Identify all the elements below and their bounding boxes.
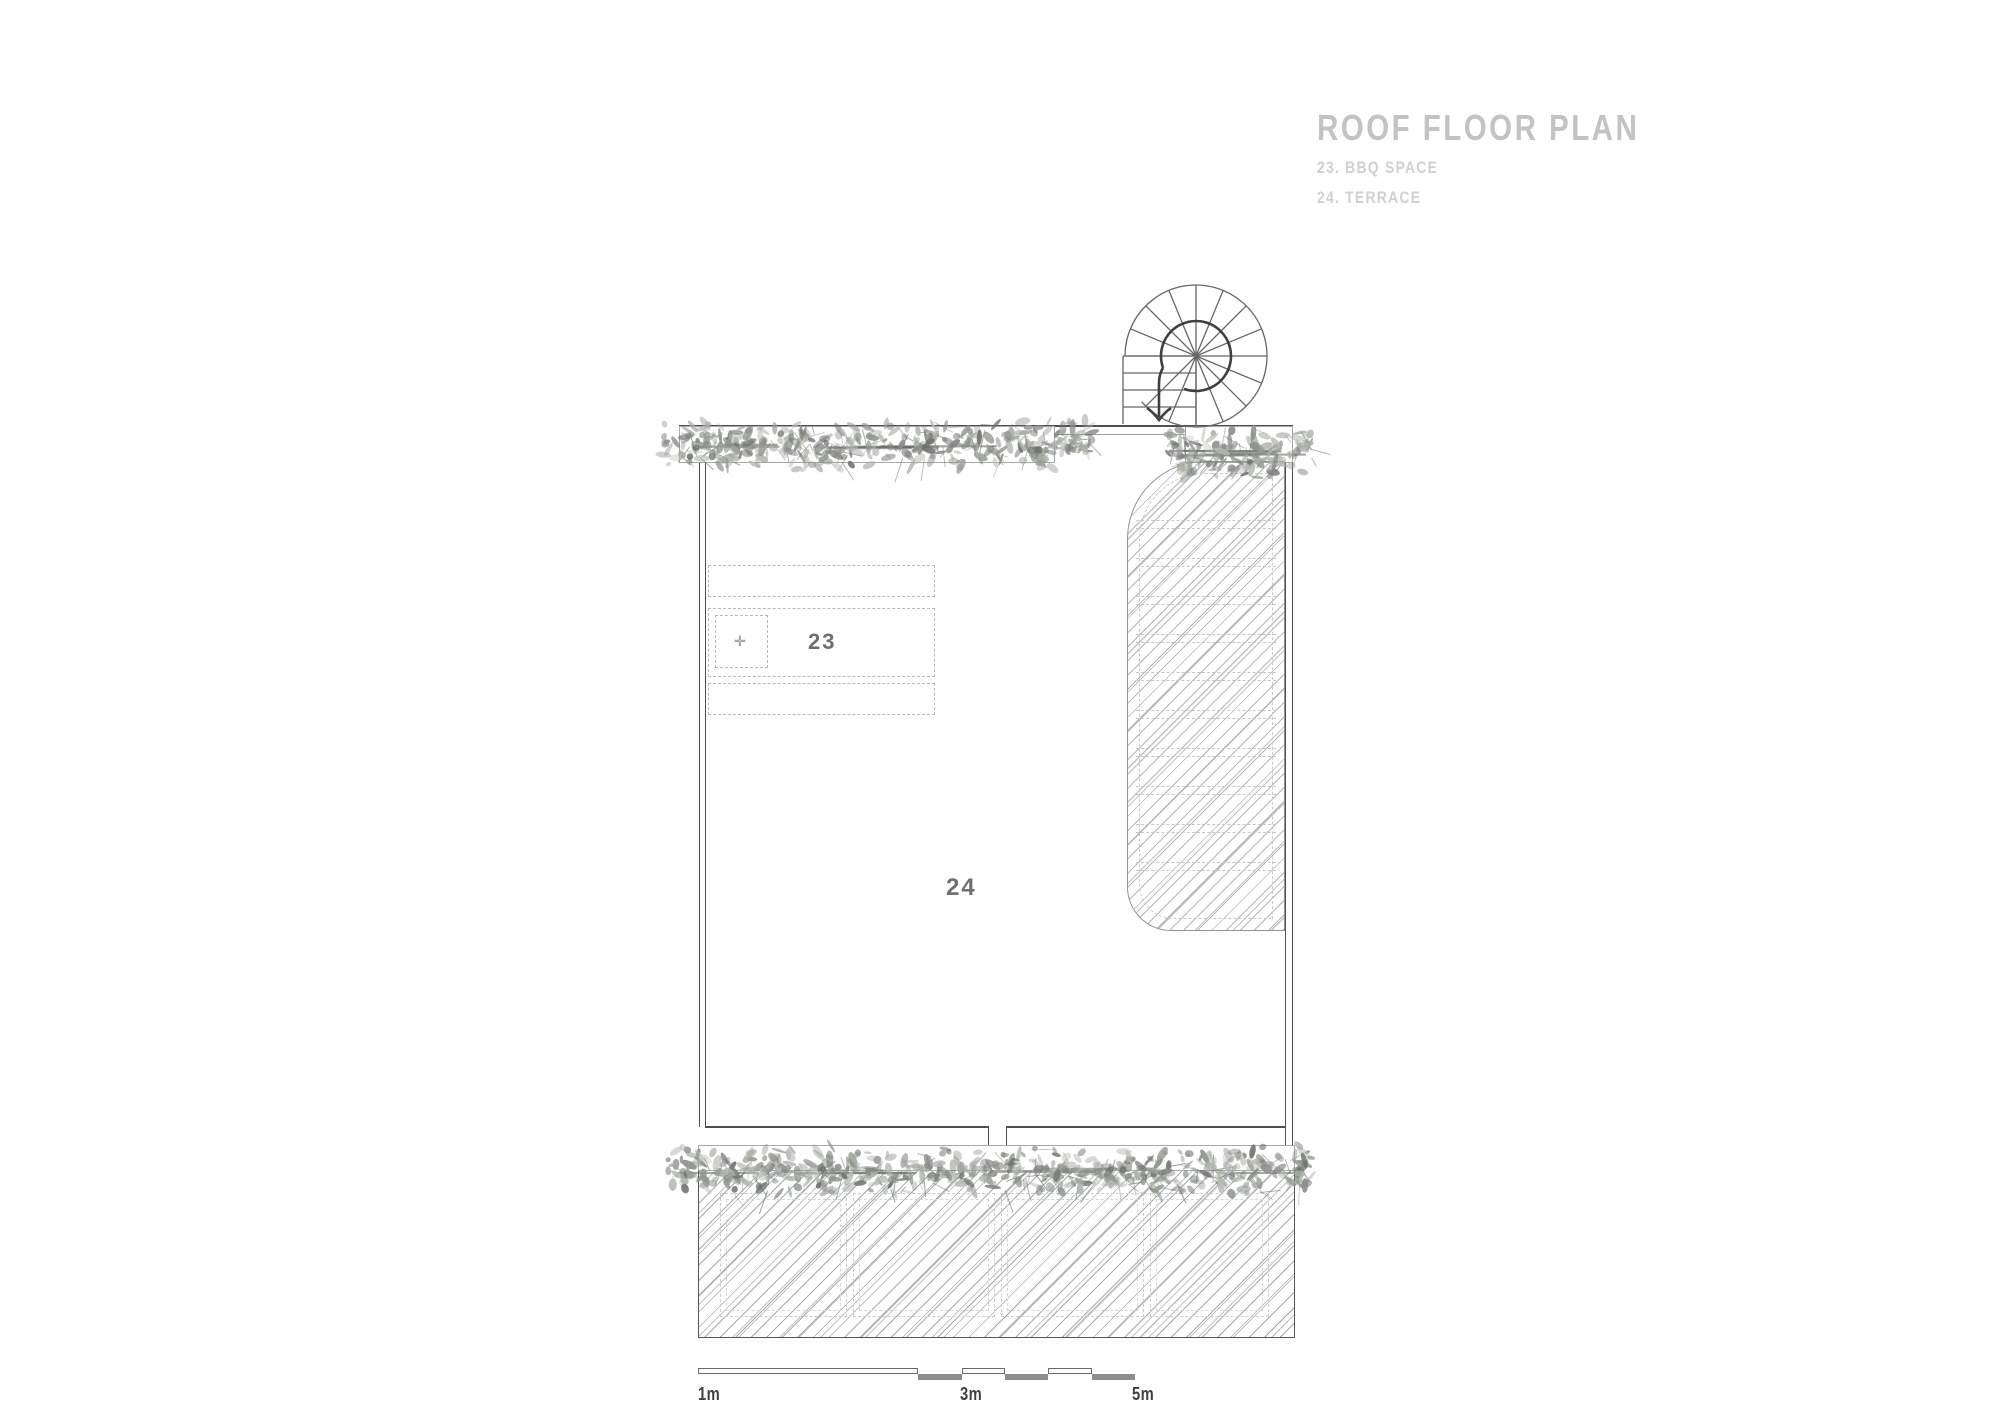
- scale-label-3m: 3m: [960, 1384, 982, 1405]
- east-wall-outer-line: [1292, 425, 1293, 1170]
- title-block: ROOF FLOOR PLAN 23. BBQ SPACE 24. TERRAC…: [1317, 110, 1710, 206]
- bbq-fixture-icon: ✛: [734, 633, 746, 650]
- deck-slat-dashed-line: [1136, 710, 1276, 711]
- deck-slat-dashed-line: [1136, 528, 1276, 529]
- deck-slat-dashed-line: [1136, 604, 1276, 605]
- page-title: ROOF FLOOR PLAN: [1317, 110, 1639, 146]
- planter-box-south: [698, 1145, 1295, 1171]
- lower-roof-panel-dashed-outline: [720, 1193, 847, 1317]
- south-wall-right-segment: [1007, 1126, 1285, 1128]
- scale-segment: [962, 1368, 1005, 1374]
- bbq-counter-top-band: [708, 565, 935, 597]
- bbq-counter-bottom-band: [708, 683, 935, 715]
- deck-slat-dashed-line: [1136, 642, 1276, 643]
- lower-roof-panel-inner-dashed: [726, 1199, 841, 1311]
- legend-item-terrace: 24. TERRACE: [1317, 189, 1421, 206]
- stair-treads: [1123, 285, 1267, 427]
- scale-label-1m: 1m: [698, 1384, 720, 1405]
- scale-bar: 1m 3m 5m: [698, 1364, 1158, 1404]
- deck-inset-dashed-outline: [1139, 473, 1273, 919]
- scale-segment: [918, 1374, 962, 1380]
- deck-slat-dashed-line: [1136, 672, 1276, 673]
- lower-roof-panel-inner-dashed: [1007, 1199, 1138, 1311]
- deck-slat-dashed-line: [1136, 634, 1276, 635]
- lower-roof-panel-dashed-outline: [853, 1193, 995, 1317]
- deck-slat-dashed-line: [1136, 596, 1276, 597]
- deck-slat-dashed-line: [1136, 566, 1276, 567]
- deck-slat-dashed-line: [1136, 824, 1276, 825]
- lower-roof-hatched-band: [698, 1170, 1295, 1338]
- deck-slat-dashed-line: [1136, 558, 1276, 559]
- stair-walk-line: [1147, 321, 1231, 420]
- lower-roof-panel-dashed-outline: [1150, 1193, 1269, 1317]
- room-label-bbq: 23: [808, 629, 836, 655]
- legend-item-bbq-space: 23. BBQ SPACE: [1317, 159, 1438, 176]
- deck-slat-dashed-line: [1136, 680, 1276, 681]
- scale-segment: [698, 1368, 918, 1374]
- lower-roof-panel-inner-dashed: [1156, 1199, 1263, 1311]
- west-wall-inner-line: [705, 425, 706, 1127]
- deck-slat-dashed-line: [1136, 756, 1276, 757]
- scale-segment: [1005, 1374, 1048, 1380]
- deck-slat-dashed-line: [1136, 520, 1276, 521]
- deck-slat-dashed-line: [1136, 718, 1276, 719]
- lower-roof-panel-dashed-outline: [1001, 1193, 1144, 1317]
- west-wall-outer-line: [699, 425, 700, 1127]
- deck-slat-dashed-line: [1136, 862, 1276, 863]
- lower-roof-panel-inner-dashed: [859, 1199, 989, 1311]
- scale-segment: [1048, 1368, 1092, 1374]
- deck-slat-dashed-line: [1136, 794, 1276, 795]
- scale-label-5m: 5m: [1132, 1384, 1154, 1405]
- spiral-staircase: [1095, 258, 1315, 433]
- roof-floor-plan-sheet: ROOF FLOOR PLAN 23. BBQ SPACE 24. TERRAC…: [0, 0, 2000, 1415]
- hatched-deck-area: [1127, 461, 1285, 931]
- south-wall-left-segment: [705, 1126, 988, 1128]
- deck-slat-dashed-line: [1136, 832, 1276, 833]
- deck-slat-dashed-line: [1136, 786, 1276, 787]
- deck-slat-dashed-line: [1136, 748, 1276, 749]
- scale-segment: [1092, 1374, 1135, 1380]
- room-label-terrace: 24: [946, 874, 977, 902]
- deck-slat-dashed-line: [1136, 870, 1276, 871]
- planter-box-top-left: [679, 426, 1055, 463]
